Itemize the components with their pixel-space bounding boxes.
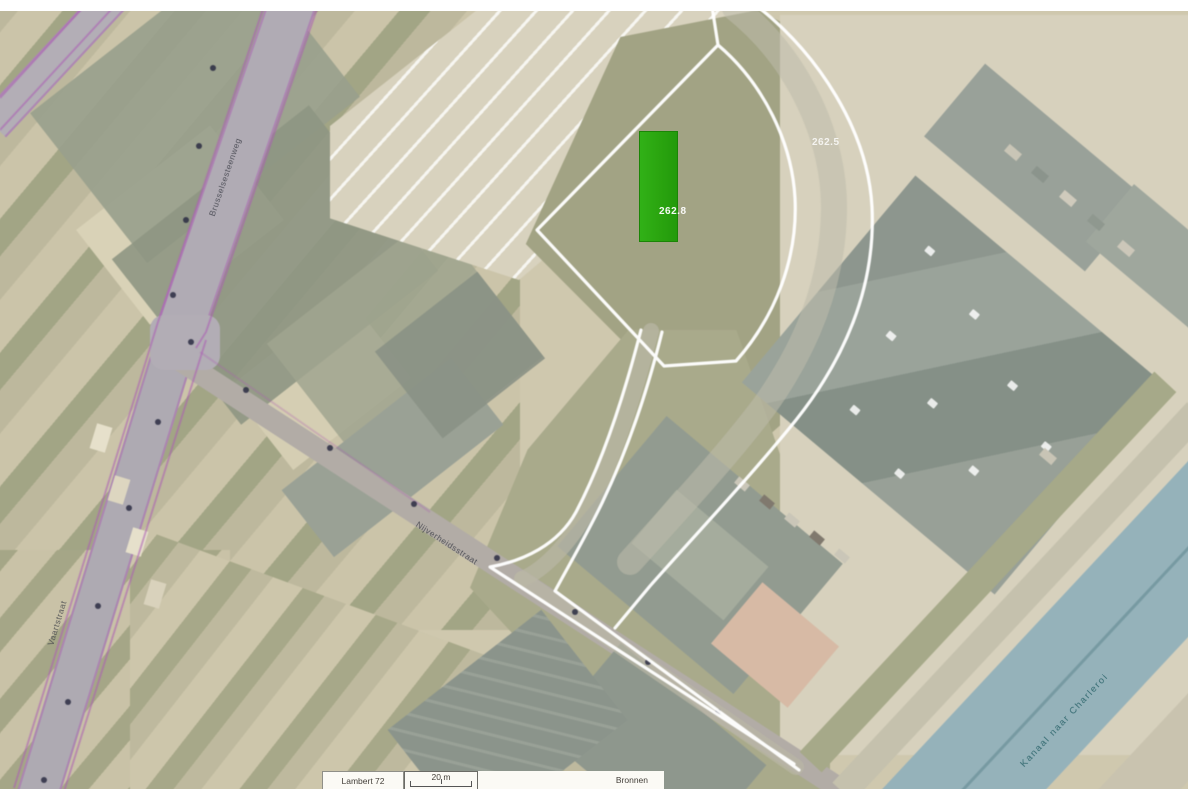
page-margin-top: [0, 0, 1200, 11]
scale-ruler-midtick: [441, 779, 442, 784]
scalebar: Lambert 72 20 m Bronnen: [322, 771, 664, 790]
projection-label: Lambert 72: [322, 771, 404, 790]
map-overlay: [0, 0, 1200, 800]
map-viewport[interactable]: 262.8 262.5 Brusselsesteenweg Vaartstraa…: [0, 0, 1200, 800]
page-margin-bottom: [0, 789, 1200, 800]
selected-parcel-marker[interactable]: [639, 131, 678, 242]
corridor-fill: [522, 8, 834, 767]
measurement-label: 262.5: [812, 137, 840, 148]
scale-ruler-marks: [410, 781, 472, 787]
sources-link[interactable]: Bronnen: [478, 771, 664, 790]
page-margin-right: [1188, 0, 1200, 800]
scale-ruler: 20 m: [404, 771, 478, 790]
measurement-label: 262.8: [659, 206, 687, 217]
cadastral-lines: [0, 0, 430, 798]
gis-application-window: 262.8 262.5 Brusselsesteenweg Vaartstraa…: [0, 0, 1200, 800]
